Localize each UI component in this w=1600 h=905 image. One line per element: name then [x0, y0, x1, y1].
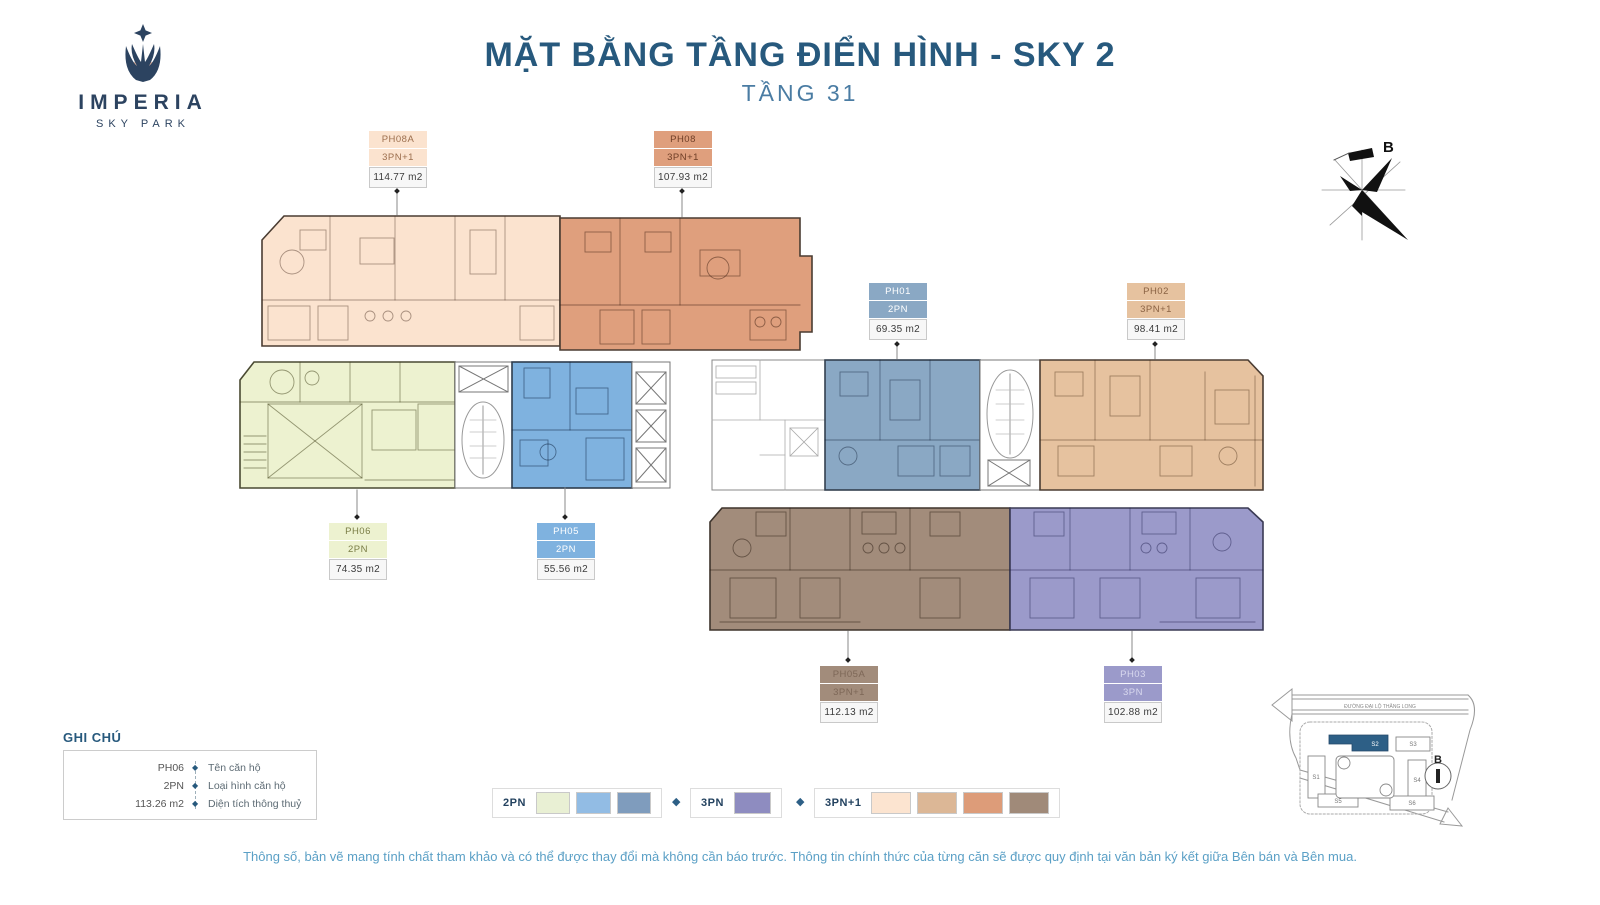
unit-area: 102.88 m2	[1104, 702, 1162, 723]
unit-code: PH08	[654, 131, 712, 148]
color-swatch	[734, 792, 771, 814]
site-map: ĐƯỜNG ĐẠI LỘ THĂNG LONG S1 S2 S3 S4	[1272, 689, 1475, 826]
color-swatch	[576, 792, 610, 814]
unit-area: 98.41 m2	[1127, 319, 1185, 340]
legend-title: GHI CHÚ	[63, 730, 121, 745]
svg-text:B: B	[1434, 754, 1442, 766]
unit-plan-ph01	[825, 360, 980, 490]
unit-area: 114.77 m2	[369, 167, 427, 188]
unit-tag-ph03: PH03 3PN 102.88 m2	[1104, 666, 1162, 723]
color-swatch	[617, 792, 651, 814]
floorplan-page: IMPERIA SKY PARK MẶT BẰNG TẦNG ĐIỂN HÌNH…	[0, 0, 1600, 905]
legend-group-3pn1: 3PN+1	[814, 788, 1060, 818]
unit-code: PH01	[869, 283, 927, 300]
unit-plan-ph02	[1040, 360, 1263, 490]
svg-text:S1: S1	[1312, 775, 1320, 781]
unit-tag-ph08: PH08 3PN+1 107.93 m2	[654, 131, 712, 188]
unit-code: PH05	[537, 523, 595, 540]
legend-box: PH06 ◆ Tên căn hộ 2PN ◆ Loại hình căn hộ…	[63, 750, 317, 820]
unit-code: PH06	[329, 523, 387, 540]
legend-group-label: 2PN	[503, 797, 526, 809]
svg-text:S4: S4	[1413, 778, 1421, 784]
diamond-icon: ◆	[192, 793, 198, 815]
unit-tag-ph05: PH05 2PN 55.56 m2	[537, 523, 595, 580]
unit-tag-ph02: PH02 3PN+1 98.41 m2	[1127, 283, 1185, 340]
unit-plan-ph08	[560, 218, 812, 350]
unit-plan-ph05a	[710, 508, 1010, 630]
legend-group-2pn: 2PN	[492, 788, 662, 818]
unit-type: 3PN+1	[654, 149, 712, 166]
color-swatch	[871, 792, 911, 814]
unit-code: PH08A	[369, 131, 427, 148]
legend-group-label: 3PN+1	[825, 797, 861, 809]
unit-code: PH02	[1127, 283, 1185, 300]
site-map-compass-icon: B	[1425, 754, 1451, 789]
unit-tag-ph08a: PH08A 3PN+1 114.77 m2	[369, 131, 427, 188]
svg-text:B: B	[1383, 139, 1394, 156]
unit-code: PH05A	[820, 666, 878, 683]
unit-area: 112.13 m2	[820, 702, 878, 723]
disclaimer-text: Thông số, bản vẽ mang tính chất tham khả…	[0, 849, 1600, 864]
unit-area: 107.93 m2	[654, 167, 712, 188]
unit-type: 3PN+1	[820, 684, 878, 701]
road-label: ĐƯỜNG ĐẠI LỘ THĂNG LONG	[1344, 703, 1416, 710]
elevator-core	[632, 362, 670, 488]
diamond-separator-icon: ◆	[796, 795, 804, 808]
unit-area: 69.35 m2	[869, 319, 927, 340]
color-swatch	[917, 792, 957, 814]
highlighted-building-s2	[1329, 735, 1388, 751]
stair-core-right	[980, 360, 1040, 490]
unit-plan-ph05	[512, 362, 632, 488]
unit-code: PH03	[1104, 666, 1162, 683]
technical-core	[712, 360, 825, 490]
stair-core-left	[455, 362, 512, 488]
unit-type: 3PN+1	[1127, 301, 1185, 318]
legend-group-3pn: 3PN	[690, 788, 782, 818]
color-swatch	[536, 792, 570, 814]
svg-text:S3: S3	[1409, 742, 1417, 748]
color-swatch	[963, 792, 1003, 814]
svg-text:S2: S2	[1371, 742, 1379, 748]
svg-text:S5: S5	[1334, 799, 1342, 805]
legend-group-label: 3PN	[701, 797, 724, 809]
unit-type: 3PN	[1104, 684, 1162, 701]
unit-plan-ph06	[240, 362, 455, 488]
unit-type: 3PN+1	[369, 149, 427, 166]
legend-desc: Diện tích thông thuỷ	[208, 793, 301, 815]
unit-area: 55.56 m2	[537, 559, 595, 580]
north-compass-icon: B	[1322, 139, 1408, 240]
diamond-separator-icon: ◆	[672, 795, 680, 808]
color-swatch	[1009, 792, 1049, 814]
unit-type: 2PN	[329, 541, 387, 558]
unit-type: 2PN	[537, 541, 595, 558]
unit-tag-ph05a: PH05A 3PN+1 112.13 m2	[820, 666, 878, 723]
unit-type: 2PN	[869, 301, 927, 318]
unit-plan-ph03	[1010, 508, 1263, 630]
unit-tag-ph06: PH06 2PN 74.35 m2	[329, 523, 387, 580]
unit-area: 74.35 m2	[329, 559, 387, 580]
unit-tag-ph01: PH01 2PN 69.35 m2	[869, 283, 927, 340]
svg-text:S6: S6	[1408, 801, 1416, 807]
unit-plan-ph08a	[262, 216, 560, 346]
legend-sample-area: 113.26 m2	[64, 793, 184, 815]
